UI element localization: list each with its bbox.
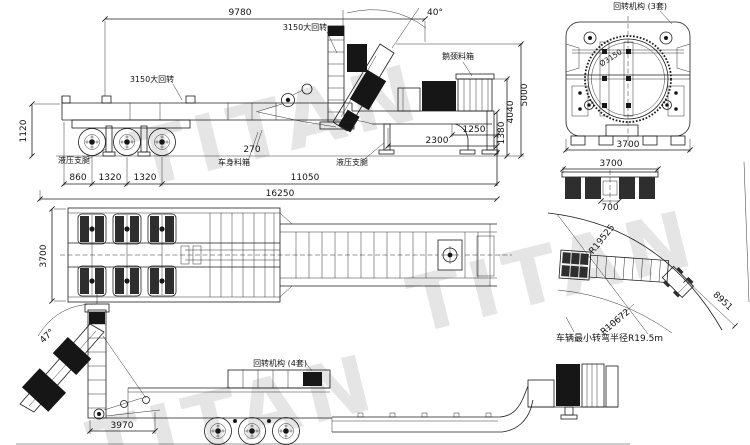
label-slew-mechanism-3: 回转机构 (3套): [613, 1, 667, 11]
dim-1120: 1120: [19, 119, 29, 142]
watermark-text: TITAN: [125, 47, 433, 206]
label-hydraulic-leg-front: 液压支腿: [58, 155, 90, 165]
dim-16250: 16250: [266, 189, 295, 199]
turning-caption: 车辆最小转弯半径R19.5m: [556, 332, 663, 344]
dim-5000: 5000: [520, 83, 530, 106]
dim-rear-3700: 3700: [617, 140, 640, 150]
watermark-text: TITAN: [400, 193, 708, 352]
dim-9780: 9780: [229, 8, 252, 18]
label-slew-upper: 3150大回转: [283, 22, 327, 32]
dim-11050: 11050: [291, 173, 320, 183]
angle-47: 47°: [38, 327, 56, 345]
dim-8951: 8951: [711, 290, 735, 313]
dim-2300: 2300: [426, 136, 449, 146]
dim-axle-3700: 3700: [600, 159, 623, 169]
dim-plan-3700: 3700: [39, 244, 49, 267]
rear-view: 回转机构 (3套) Ø3150 3700: [563, 1, 692, 153]
label-body-box: 车身料箱: [218, 157, 250, 167]
dim-270: 270: [243, 145, 260, 155]
dim-1320-a: 1320: [99, 173, 122, 183]
label-slew-lower: 3150大回转: [130, 74, 174, 84]
dim-3970: 3970: [111, 421, 134, 431]
trailer-engineering-drawing: TITAN TITAN TITAN 9780 40° 3150大回转 3150大…: [0, 0, 750, 445]
angle-40: 40°: [427, 8, 443, 18]
dim-860: 860: [69, 173, 86, 183]
dim-1250: 1250: [463, 125, 486, 135]
label-slew-mechanism-4: 回转机构 (4套): [253, 358, 307, 368]
kingpin: [438, 240, 462, 270]
dim-diameter-3150: Ø3150: [598, 47, 624, 68]
label-gooseneck-box: 鹅颈料箱: [442, 51, 474, 61]
radius-inner: R10672: [599, 307, 632, 337]
label-hydraulic-leg-rear: 液压支腿: [336, 157, 368, 167]
dim-700: 700: [601, 203, 618, 213]
dim-4040: 4040: [506, 100, 516, 123]
drawing-canvas: TITAN TITAN TITAN 9780 40° 3150大回转 3150大…: [0, 0, 750, 445]
dim-1320-b: 1320: [134, 173, 157, 183]
watermarks: TITAN TITAN TITAN: [80, 47, 708, 445]
dim-1380: 1380: [497, 121, 507, 144]
